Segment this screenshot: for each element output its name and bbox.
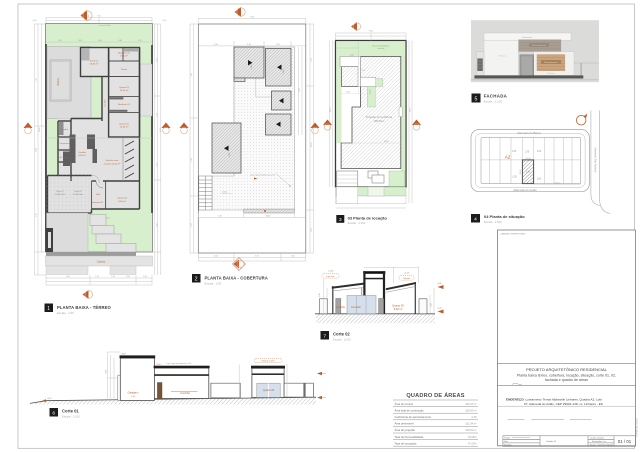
svg-text:Quarto 01: Quarto 01 [119, 86, 130, 89]
svg-text:Pintura: Pintura [499, 55, 507, 58]
svg-text:i=10%: i=10% [251, 64, 253, 70]
svg-text:03 Planta de locação: 03 Planta de locação [348, 215, 388, 220]
svg-text:5,00: 5,00 [350, 55, 354, 57]
svg-text:Área do terreno: Área do terreno [395, 402, 414, 406]
svg-text:PLANTA BAIXA - TÉRREO: PLANTA BAIXA - TÉRREO [57, 305, 111, 310]
svg-text:A2: A2 [505, 155, 511, 160]
svg-text:Despensa: Despensa [60, 143, 71, 145]
svg-text:1,10: 1,10 [111, 276, 115, 278]
svg-text:5,10: 5,10 [311, 58, 313, 62]
svg-text:Alameda do Bacia: Alameda do Bacia [517, 131, 541, 135]
svg-text:5,80: 5,80 [156, 223, 158, 227]
svg-text:+3,60: +3,60 [328, 271, 334, 273]
svg-text:Escala : 1:50: Escala : 1:50 [57, 311, 74, 315]
svg-text:4,90: 4,90 [214, 44, 218, 46]
svg-text:Unidade: M: Unidade: M [546, 441, 556, 443]
svg-text:01 / 01: 01 / 01 [618, 439, 632, 444]
svg-text:Área de projeção: Área de projeção [395, 428, 416, 432]
svg-text:3: 3 [339, 217, 342, 222]
svg-text:Corte 01: Corte 01 [62, 409, 79, 414]
svg-text:Corredor: Corredor [105, 99, 107, 107]
svg-text:4,70: 4,70 [191, 223, 193, 227]
svg-text:Lavabo: Lavabo [61, 129, 69, 131]
svg-text:Banheiro 03: Banheiro 03 [91, 201, 104, 204]
svg-text:2: 2 [195, 277, 198, 283]
svg-text:L35: L35 [512, 149, 517, 153]
svg-text:Projeto: Projeto [504, 437, 510, 440]
svg-text:Corredor: Corredor [351, 305, 361, 309]
svg-text:0,45: 0,45 [472, 416, 477, 419]
svg-text:3,00: 3,00 [291, 256, 295, 258]
svg-text:i=10%: i=10% [283, 69, 285, 75]
svg-text:2,80: 2,80 [106, 370, 108, 374]
svg-text:3,80: 3,80 [299, 88, 301, 92]
svg-text:Taxa de Permeabilidade: Taxa de Permeabilidade [395, 435, 424, 439]
svg-text:Acesso de pedestre: Acesso de pedestre [373, 44, 390, 47]
svg-text:9,00: 9,00 [369, 31, 373, 33]
svg-text:Laje impermeabilizada i=1%: Laje impermeabilizada i=1% [250, 175, 275, 177]
svg-text:5: 5 [475, 96, 478, 102]
svg-text:+1,10: +1,10 [437, 308, 442, 310]
svg-text:8,50 m²: 8,50 m² [78, 154, 86, 157]
svg-text:3,55: 3,55 [276, 44, 280, 46]
svg-text:28,00: 28,00 [330, 108, 332, 113]
svg-text:Banheiro 01: Banheiro 01 [118, 103, 131, 106]
svg-text:422,03 m²: 422,03 m² [465, 403, 476, 406]
svg-text:Quarto 02: Quarto 02 [119, 123, 130, 126]
svg-text:6: 6 [52, 411, 55, 417]
svg-text:5,40: 5,40 [156, 113, 158, 117]
svg-text:Calçada: Calçada [97, 262, 106, 264]
svg-text:Vaga 02: Vaga 02 [74, 191, 82, 193]
svg-text:+2,80: +2,80 [437, 283, 442, 285]
svg-text:Telhado: Telhado [403, 278, 411, 280]
svg-text:1,20: 1,20 [346, 92, 350, 94]
svg-text:3,00: 3,00 [78, 40, 82, 42]
svg-text:15,00: 15,00 [525, 158, 531, 160]
svg-text:4,10: 4,10 [247, 44, 251, 46]
svg-text:2,40: 2,40 [362, 70, 366, 72]
svg-text:7: 7 [323, 334, 326, 340]
svg-text:28,00: 28,00 [39, 128, 41, 133]
svg-text:1,80: 1,80 [431, 303, 433, 307]
svg-text:11,60: 11,60 [36, 148, 38, 152]
svg-text:3,55: 3,55 [311, 228, 313, 232]
svg-text:+3,60: +3,60 [156, 364, 161, 366]
svg-text:Quarto 03: Quarto 03 [117, 197, 128, 200]
svg-text:Hall: Hall [96, 194, 100, 196]
svg-text:CARIMBO PREFEITURA: CARIMBO PREFEITURA [500, 233, 525, 236]
svg-text:189,54 m²: 189,54 m² [465, 429, 476, 432]
svg-text:+0,00: +0,00 [162, 20, 166, 22]
svg-text:Platibanda: Platibanda [522, 36, 533, 39]
svg-text:9,35: 9,35 [36, 213, 38, 217]
svg-text:36,09%: 36,09% [468, 436, 477, 439]
svg-text:muro h=1,80m: muro h=1,80m [99, 25, 111, 27]
svg-text:Área total de construção: Área total de construção [395, 408, 425, 412]
svg-text:Projeção da residência: Projeção da residência [366, 115, 393, 119]
svg-text:13,50 m²: 13,50 m² [90, 63, 99, 66]
svg-text:N: N [86, 14, 88, 18]
svg-text:28,00: 28,00 [410, 108, 412, 113]
svg-text:07, Alameda do Avião, CEP 2990: 07, Alameda do Avião, CEP 29901-138, xx,… [524, 402, 603, 406]
svg-text:QUADRO DE ÁREAS: QUADRO DE ÁREAS [406, 392, 464, 399]
svg-text:7,15: 7,15 [36, 78, 38, 82]
svg-text:2,50x5,00m: 2,50x5,00m [55, 194, 66, 196]
svg-text:5,00: 5,00 [66, 276, 70, 278]
svg-text:4,20: 4,20 [156, 163, 158, 167]
svg-text:2,50x5,00m: 2,50x5,00m [73, 194, 84, 196]
svg-text:Alameda São Patricio: Alameda São Patricio [594, 148, 598, 173]
svg-text:Quarto 03: Quarto 03 [392, 304, 404, 308]
svg-text:Escala : 1:100: Escala : 1:100 [62, 415, 80, 419]
svg-text:10,80: 10,80 [266, 216, 271, 218]
svg-text:9,00 m²: 9,00 m² [118, 200, 126, 203]
svg-text:7,00: 7,00 [97, 16, 101, 18]
svg-text:1,50: 1,50 [143, 276, 147, 278]
svg-text:2,00: 2,00 [126, 276, 130, 278]
svg-text:189,54m²: 189,54m² [374, 119, 385, 123]
svg-text:1,60: 1,60 [218, 216, 222, 218]
svg-text:04 Planta de situação: 04 Planta de situação [484, 214, 525, 219]
svg-text:Sala de estar: Sala de estar [106, 159, 119, 162]
svg-text:Escala : 1:100: Escala : 1:100 [484, 100, 503, 104]
svg-text:Closet: Closet [121, 68, 128, 71]
svg-text:Garagem: Garagem [128, 391, 139, 395]
svg-text:Laje impermeabilizada i=1%: Laje impermeabilizada i=1% [167, 363, 192, 365]
svg-text:FACHADA: FACHADA [484, 94, 508, 99]
svg-text:Revestimento: Revestimento [544, 61, 558, 64]
svg-text:L28: L28 [512, 175, 517, 179]
svg-text:3,40: 3,40 [118, 40, 122, 42]
svg-text:2,60: 2,60 [98, 40, 102, 42]
svg-text:70,00: 70,00 [554, 182, 560, 184]
svg-text:10,50 m²: 10,50 m² [120, 89, 129, 92]
svg-text:Desenho: Desenho [504, 445, 512, 447]
svg-text:Escala : 1:100: Escala : 1:100 [333, 338, 351, 342]
svg-text:FORMATO A1 594x841: FORMATO A1 594x841 [636, 418, 639, 437]
svg-text:Pintura: Pintura [548, 72, 556, 75]
svg-text:7,80: 7,80 [191, 73, 193, 77]
svg-text:14,90: 14,90 [384, 141, 389, 143]
svg-text:Área permeável: Área permeável [395, 422, 414, 426]
svg-text:Planta baixa térreo, cobertura: Planta baixa térreo, cobertura, locação,… [517, 374, 616, 378]
svg-text:+3,00: +3,00 [121, 354, 126, 356]
svg-text:28,00: 28,00 [160, 128, 162, 133]
svg-text:PROJETO ARQUITETÔNICO RESIDENC: PROJETO ARQUITETÔNICO RESIDENCIAL [526, 367, 608, 372]
svg-text:Suíte 01: Suíte 01 [90, 60, 99, 63]
svg-text:A. Serviço: A. Serviço [60, 156, 71, 159]
svg-text:2,80: 2,80 [319, 293, 321, 297]
svg-text:Escala : 1:500: Escala : 1:500 [484, 220, 502, 224]
svg-text:3,50: 3,50 [156, 58, 158, 62]
svg-text:1: 1 [47, 306, 50, 312]
svg-text:+0,15: +0,15 [47, 398, 52, 400]
svg-text:28,00: 28,00 [520, 169, 522, 175]
svg-text:Lei de Licitações: Lei de Licitações [590, 437, 604, 440]
svg-text:Cozinha: Cozinha [335, 305, 345, 309]
svg-text:3,00 m²: 3,00 m² [120, 55, 128, 58]
svg-text:6,75: 6,75 [255, 256, 259, 258]
svg-text:9,00 m²: 9,00 m² [394, 307, 403, 311]
svg-text:10,50 m²: 10,50 m² [120, 126, 129, 129]
svg-text:1,50: 1,50 [58, 40, 62, 42]
svg-text:fachada e quadro de áreas: fachada e quadro de áreas [545, 378, 588, 382]
svg-text:Escala : Conforme indicado: Escala : Conforme indicado [590, 444, 613, 447]
svg-text:7,40: 7,40 [250, 17, 254, 19]
svg-text:PLANTA BAIXA - COBERTURA: PLANTA BAIXA - COBERTURA [205, 275, 268, 280]
svg-text:+4,20: +4,20 [404, 273, 410, 275]
svg-text:Coeficiente de aproveitamento: Coeficiente de aproveitamento [395, 415, 432, 419]
svg-text:10,20: 10,20 [311, 143, 313, 148]
svg-text:+0,05: +0,05 [131, 396, 136, 398]
svg-text:L06: L06 [537, 177, 542, 181]
svg-text:189,54 m²: 189,54 m² [465, 409, 476, 412]
svg-text:4: 4 [474, 217, 477, 223]
svg-text:2,45: 2,45 [138, 40, 142, 42]
svg-text:Banheiro 02: Banheiro 02 [118, 52, 131, 55]
svg-text:Vaga 01: Vaga 01 [56, 191, 64, 193]
svg-text:47,03%: 47,03% [468, 442, 477, 445]
svg-text:Resolução nº xx: Resolução nº xx [592, 440, 606, 443]
svg-text:4,00: 4,00 [214, 256, 218, 258]
svg-text:Laje imp.: Laje imp. [326, 276, 335, 278]
svg-text:e jantar 21,00 m²: e jantar 21,00 m² [104, 163, 121, 166]
svg-text:Quarto 03: Quarto 03 [263, 388, 275, 392]
svg-text:2,10: 2,10 [95, 276, 99, 278]
svg-text:+0,00: +0,00 [32, 20, 36, 22]
svg-text:i=10%: i=10% [229, 152, 231, 158]
svg-text:L29: L29 [537, 149, 542, 153]
svg-text:L25: L25 [526, 170, 531, 174]
svg-text:Escala : 1:100: Escala : 1:100 [348, 221, 366, 225]
svg-text:Piscina: Piscina [57, 77, 60, 85]
svg-text:9,20: 9,20 [191, 158, 193, 162]
svg-text:Revestimento: Revestimento [532, 44, 546, 47]
svg-text:veículos: veículos [378, 48, 385, 50]
svg-text:Corte 02: Corte 02 [333, 332, 350, 337]
svg-text:Alameda do Avião: Alameda do Avião [513, 188, 537, 192]
svg-text:152,34 m²: 152,34 m² [465, 423, 476, 426]
svg-text:L36: L36 [525, 150, 530, 154]
svg-text:Cozinha: Cozinha [78, 152, 87, 154]
svg-text:Telhado i=10%: Telhado i=10% [261, 361, 274, 363]
svg-text:Escala : 1:50: Escala : 1:50 [205, 281, 222, 285]
svg-text:acesso: acesso [370, 89, 372, 95]
svg-text:Taxa de ocupação: Taxa de ocupação [395, 441, 417, 445]
